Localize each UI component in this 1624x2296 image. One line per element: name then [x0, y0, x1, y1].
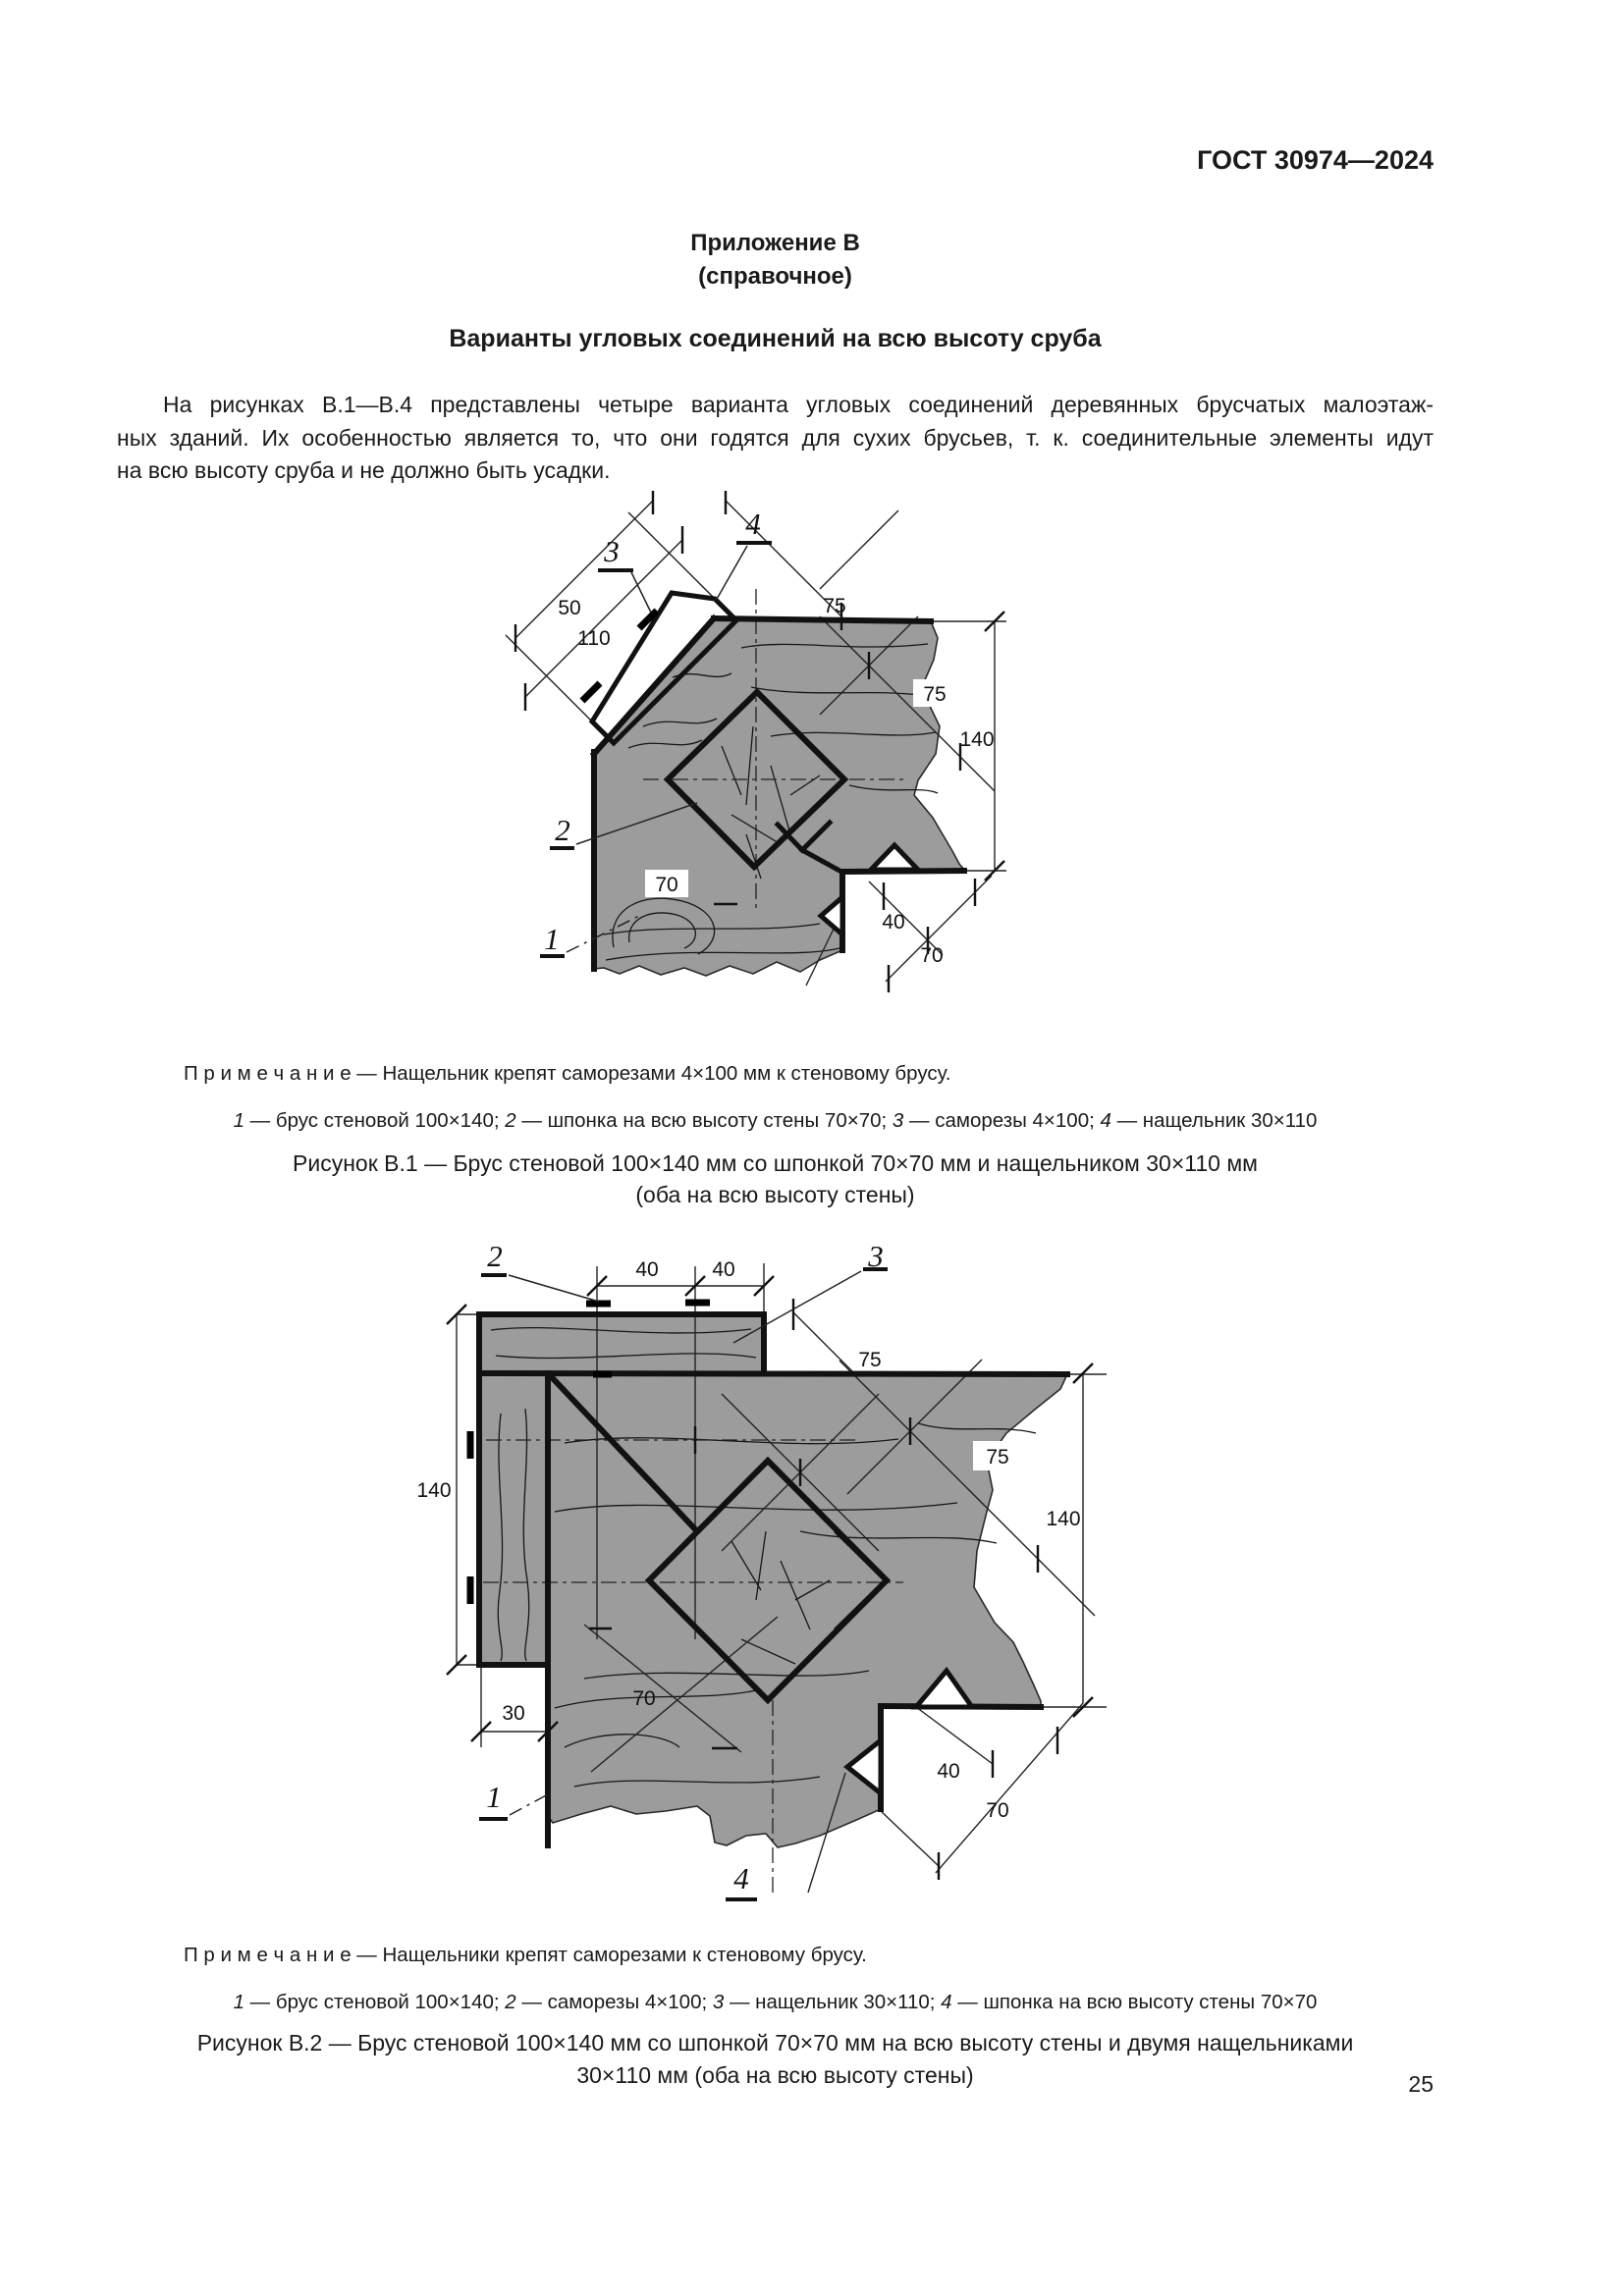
figure-b1-legend: 1 — брус стеновой 100×140; 2 — шпонка на…	[117, 1109, 1434, 1133]
dim-40-right: 40	[712, 1258, 734, 1281]
figure-b1-caption: Рисунок В.1 — Брус стеновой 100×140 мм с…	[117, 1150, 1434, 1177]
dim-50: 50	[558, 597, 580, 619]
dim-30: 30	[502, 1702, 524, 1725]
part-1-label: 1	[544, 922, 560, 956]
intro-line: ных зданий. Их особенностью является то,…	[117, 422, 1434, 455]
page-number: 25	[117, 2071, 1434, 2098]
legend-num: 3	[713, 1991, 724, 2013]
dim-140: 140	[959, 728, 994, 751]
figure-b2-legend: 1 — брус стеновой 100×140; 2 — саморезы …	[117, 1991, 1434, 2014]
dim-70-key: 70	[632, 1687, 655, 1710]
legend-text: — брус стеновой 100×140;	[244, 1991, 505, 2013]
figure-b2-note: П р и м е ч а н и е — Нащельники крепят …	[117, 1944, 1500, 1967]
part-4-label: 4	[733, 1861, 749, 1896]
legend-num: 4	[1101, 1109, 1111, 1132]
legend-text: — брус стеновой 100×140;	[244, 1109, 505, 1132]
legend-text: — нащельник 30×110	[1111, 1109, 1318, 1132]
intro-line: на всю высоту сруба и не должно быть уса…	[117, 454, 1434, 488]
figure-b2-drawing: 40 40 75 140 75 140 30 70 40 70 2 3 1 4	[407, 1217, 1154, 1914]
screw-marks	[582, 611, 657, 701]
legend-num: 2	[505, 1991, 515, 2013]
dim-70-corner: 70	[920, 944, 943, 967]
doc-number: ГОСТ 30974—2024	[117, 145, 1434, 176]
dim-75-right: 75	[986, 1446, 1008, 1468]
legend-text: — шпонка на всю высоту стены 70×70	[952, 1991, 1318, 2013]
nashchelnik-strip-left	[479, 1373, 548, 1665]
dim-110: 110	[577, 627, 610, 650]
dim-40-corner: 40	[937, 1760, 959, 1783]
figure-b2-caption: Рисунок В.2 — Брус стеновой 100×140 мм с…	[117, 2030, 1434, 2056]
legend-text: — саморезы 4×100;	[516, 1991, 713, 2013]
intro-paragraph: На рисунках В.1—В.4 представлены четыре …	[117, 389, 1434, 488]
dim-75-top: 75	[823, 595, 845, 617]
dim-140-left: 140	[416, 1479, 451, 1502]
dim-70-corner: 70	[986, 1799, 1008, 1822]
legend-num: 1	[234, 1991, 244, 2013]
dim-70-key: 70	[655, 874, 677, 896]
part-4-label: 4	[745, 507, 761, 541]
dim-140-right: 140	[1046, 1508, 1080, 1530]
section-heading: Варианты угловых соединений на всю высот…	[117, 325, 1434, 353]
legend-num: 4	[941, 1991, 951, 2013]
legend-num: 2	[505, 1109, 515, 1132]
dim-40-left: 40	[635, 1258, 658, 1281]
figure-b1-caption2: (оба на всю высоту стены)	[117, 1182, 1434, 1208]
legend-text: — шпонка на всю высоту стены 70×70;	[516, 1109, 893, 1132]
legend-text: — нащельник 30×110;	[724, 1991, 941, 2013]
part-2-label: 2	[487, 1239, 503, 1273]
dim-40: 40	[882, 911, 904, 934]
part-1-label: 1	[486, 1780, 502, 1814]
legend-text: — саморезы 4×100;	[903, 1109, 1100, 1132]
legend-num: 3	[893, 1109, 903, 1132]
intro-line: На рисунках В.1—В.4 представлены четыре …	[117, 389, 1434, 422]
legend-num: 1	[234, 1109, 244, 1132]
figure-b1-drawing: 50 110 75 75 140 70 40 70 3 4 2 1	[496, 491, 1105, 1041]
appendix-title: Приложение В	[117, 230, 1434, 257]
document-page: ГОСТ 30974—2024 Приложение В (справочное…	[0, 0, 1624, 2296]
figure-b1-note: П р и м е ч а н и е — Нащельник крепят с…	[117, 1062, 1500, 1086]
part-2-label: 2	[555, 813, 570, 847]
part-3-label: 3	[603, 534, 620, 568]
appendix-subtitle: (справочное)	[117, 263, 1434, 291]
dim-75-right: 75	[923, 683, 946, 706]
nashchelnik-strip-top	[479, 1314, 764, 1373]
dim-75-top: 75	[858, 1349, 881, 1371]
